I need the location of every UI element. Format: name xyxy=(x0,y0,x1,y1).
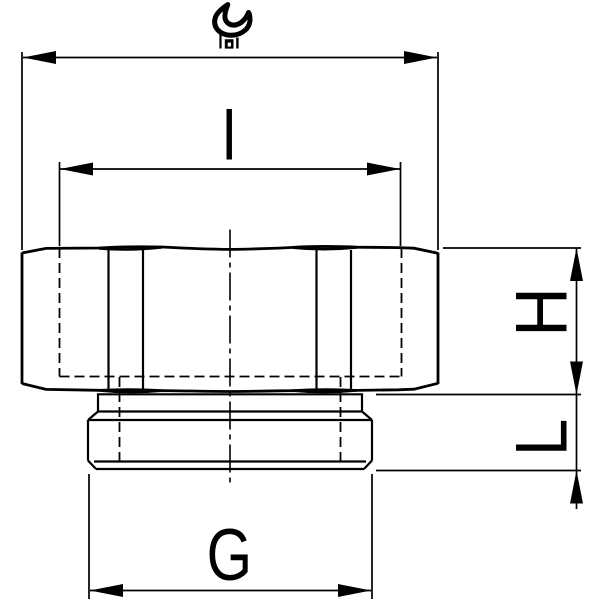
svg-text:H: H xyxy=(502,287,583,337)
svg-text:I: I xyxy=(221,94,237,176)
svg-text:G: G xyxy=(207,515,252,597)
svg-text:L: L xyxy=(500,419,582,457)
